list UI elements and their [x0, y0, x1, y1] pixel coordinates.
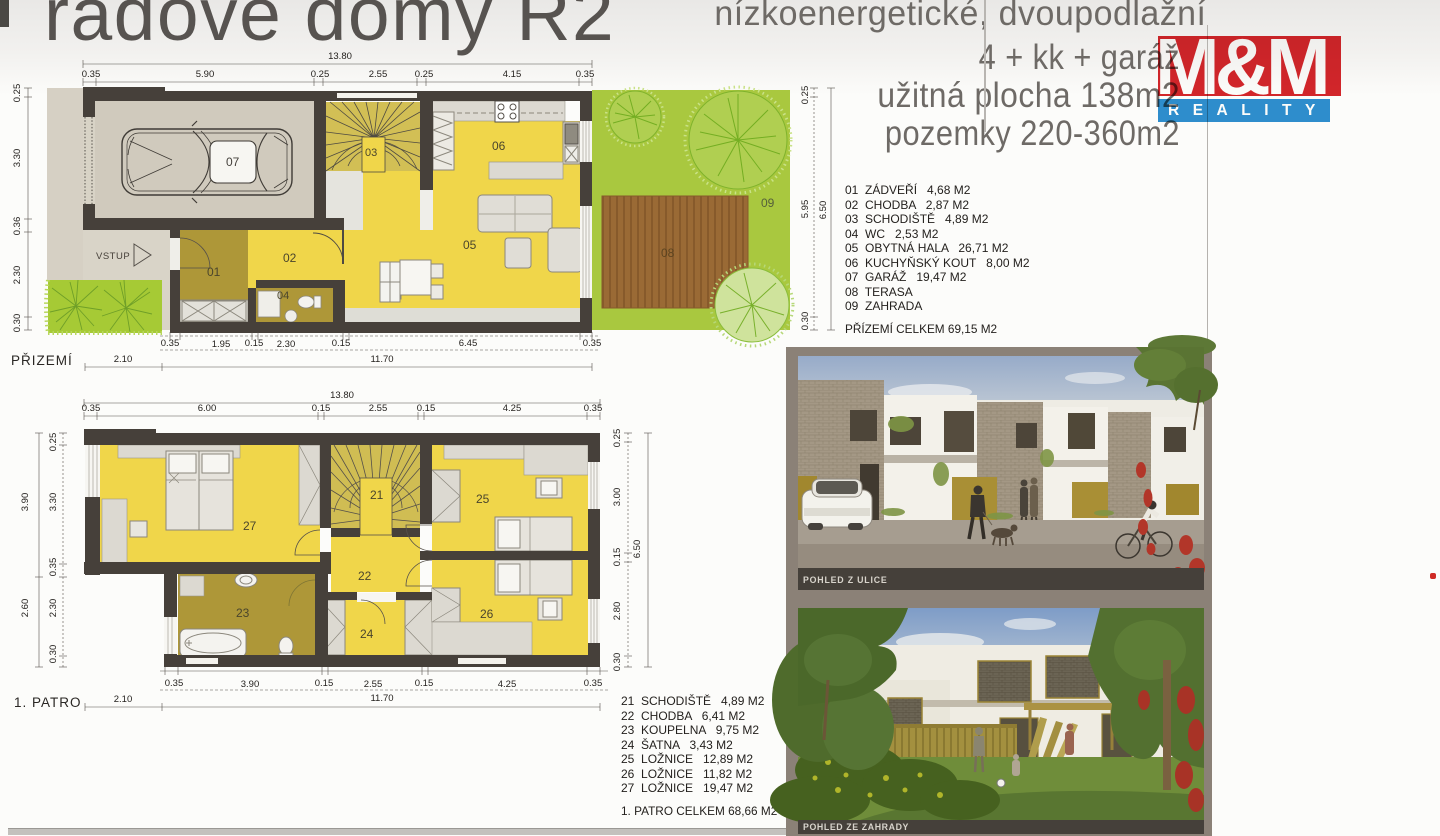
svg-text:POHLED ZE ZAHRADY: POHLED ZE ZAHRADY: [803, 822, 909, 832]
svg-text:25: 25: [476, 492, 490, 506]
svg-text:6.50: 6.50: [632, 540, 643, 559]
svg-text:0.35: 0.35: [165, 678, 184, 689]
svg-text:13.80: 13.80: [328, 51, 352, 62]
svg-text:02: 02: [283, 251, 297, 265]
svg-text:3.90: 3.90: [241, 679, 260, 690]
svg-text:0.30: 0.30: [12, 314, 23, 333]
svg-text:3.30: 3.30: [12, 149, 23, 168]
svg-text:0.15: 0.15: [315, 678, 334, 689]
svg-text:13.80: 13.80: [330, 390, 354, 401]
svg-text:0.15: 0.15: [612, 548, 623, 567]
svg-text:0.25: 0.25: [800, 86, 811, 105]
svg-text:4.15: 4.15: [503, 69, 522, 80]
svg-text:0.36: 0.36: [12, 217, 23, 236]
svg-text:6.45: 6.45: [459, 338, 478, 349]
svg-text:11.70: 11.70: [370, 693, 393, 704]
svg-text:27: 27: [243, 519, 257, 533]
svg-text:0.30: 0.30: [612, 653, 623, 672]
svg-text:2.30: 2.30: [277, 339, 296, 350]
svg-text:5.95: 5.95: [800, 200, 811, 219]
svg-text:22: 22: [358, 569, 372, 583]
svg-text:0.15: 0.15: [312, 403, 331, 414]
svg-text:2.10: 2.10: [114, 354, 133, 365]
svg-text:05: 05: [463, 238, 477, 252]
svg-text:2.30: 2.30: [12, 266, 23, 285]
svg-text:2.30: 2.30: [48, 599, 59, 618]
svg-text:04: 04: [277, 290, 289, 302]
svg-text:2.55: 2.55: [364, 679, 383, 690]
svg-text:4.25: 4.25: [498, 679, 517, 690]
svg-text:2.60: 2.60: [20, 599, 31, 618]
svg-text:0.35: 0.35: [82, 403, 101, 414]
svg-text:2.55: 2.55: [369, 69, 388, 80]
svg-text:0.25: 0.25: [311, 69, 330, 80]
svg-text:06: 06: [492, 139, 506, 153]
svg-text:0.35: 0.35: [584, 678, 603, 689]
svg-text:0.15: 0.15: [415, 678, 434, 689]
svg-text:0.35: 0.35: [48, 558, 59, 577]
svg-text:1.95: 1.95: [212, 339, 231, 350]
svg-text:23: 23: [236, 606, 250, 620]
svg-text:3.90: 3.90: [20, 493, 31, 512]
svg-text:0.30: 0.30: [800, 312, 811, 331]
svg-text:3.00: 3.00: [612, 488, 623, 507]
svg-text:3.30: 3.30: [48, 493, 59, 512]
svg-text:2.80: 2.80: [612, 602, 623, 621]
svg-text:0.15: 0.15: [417, 403, 436, 414]
svg-text:21: 21: [370, 488, 384, 502]
svg-text:2.55: 2.55: [369, 403, 388, 414]
svg-text:09: 09: [761, 196, 775, 210]
svg-text:5.90: 5.90: [196, 69, 215, 80]
svg-text:0.15: 0.15: [245, 338, 264, 349]
svg-text:6.00: 6.00: [198, 403, 217, 414]
svg-text:POHLED Z ULICE: POHLED Z ULICE: [803, 575, 888, 585]
svg-text:0.35: 0.35: [82, 69, 101, 80]
svg-text:03: 03: [365, 147, 377, 159]
svg-text:11.70: 11.70: [370, 354, 393, 365]
svg-text:26: 26: [480, 607, 494, 621]
svg-text:0.15: 0.15: [332, 338, 351, 349]
svg-text:0.25: 0.25: [48, 433, 59, 452]
svg-text:0.35: 0.35: [584, 403, 603, 414]
svg-text:24: 24: [360, 627, 374, 641]
svg-text:0.25: 0.25: [415, 69, 434, 80]
svg-text:0.25: 0.25: [12, 84, 23, 103]
svg-text:0.25: 0.25: [612, 429, 623, 448]
svg-text:0.35: 0.35: [576, 69, 595, 80]
svg-text:2.10: 2.10: [114, 694, 133, 705]
svg-text:0.35: 0.35: [583, 338, 602, 349]
svg-text:01: 01: [207, 265, 221, 279]
svg-text:08: 08: [661, 246, 675, 260]
svg-text:0.30: 0.30: [48, 645, 59, 664]
svg-text:0.35: 0.35: [161, 338, 180, 349]
svg-text:VSTUP: VSTUP: [96, 251, 130, 262]
svg-text:07: 07: [226, 155, 240, 169]
svg-text:6.50: 6.50: [818, 201, 829, 220]
svg-text:4.25: 4.25: [503, 403, 522, 414]
